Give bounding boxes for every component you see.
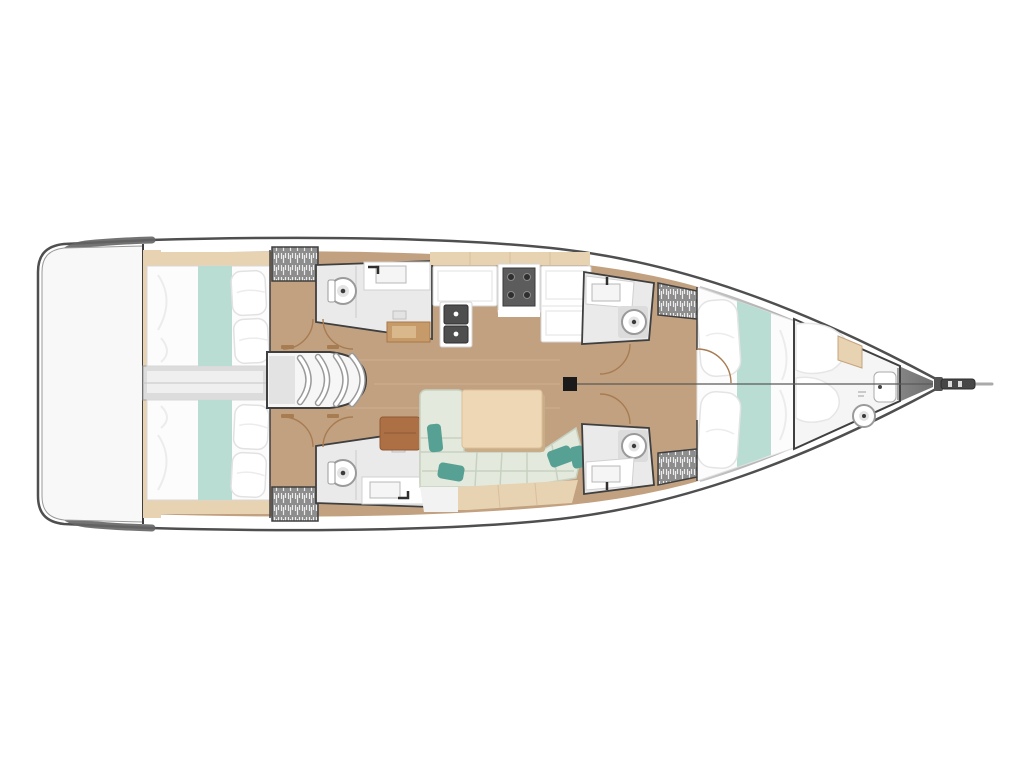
- yacht-floorplan-page: [0, 0, 1024, 768]
- vent-grate: [393, 311, 406, 319]
- swim-platform-deck: [42, 246, 143, 522]
- bowsprit-icon: [934, 377, 992, 391]
- sink-icon: [586, 276, 634, 308]
- companionway-steps: [267, 352, 366, 408]
- yacht-floorplan-diagram: [0, 0, 1024, 768]
- steps-landing: [269, 356, 295, 404]
- toilet-icon: [618, 306, 648, 338]
- sink-icon: [364, 262, 430, 290]
- toilet-icon: [328, 278, 356, 304]
- head-mid-starboard: [582, 424, 654, 494]
- berth-runner: [198, 266, 232, 366]
- wardrobe-aft-port: [272, 247, 318, 281]
- head-mid-port: [582, 272, 654, 344]
- wardrobe-aft-starboard: [272, 487, 318, 521]
- shelf-below-berth: [147, 500, 270, 514]
- shelf-above-berth: [147, 252, 270, 266]
- aft-cabin-port: [147, 250, 270, 366]
- toilet-icon: [618, 430, 648, 462]
- chart-table: [387, 322, 430, 342]
- nav-seat: [380, 417, 420, 450]
- double-sink-icon: [444, 305, 468, 343]
- toilet-icon: [328, 460, 356, 486]
- salon-table: [462, 390, 545, 452]
- berth-runner: [198, 400, 232, 500]
- sink-icon: [362, 477, 428, 504]
- sink-icon: [586, 458, 634, 490]
- stove-icon: [498, 264, 540, 317]
- toilet-icon: [853, 405, 875, 427]
- mast-icon: [563, 377, 577, 391]
- engine-compartment: [143, 366, 267, 400]
- counter-port-top: [433, 266, 497, 306]
- aft-cabin-starboard: [147, 400, 270, 518]
